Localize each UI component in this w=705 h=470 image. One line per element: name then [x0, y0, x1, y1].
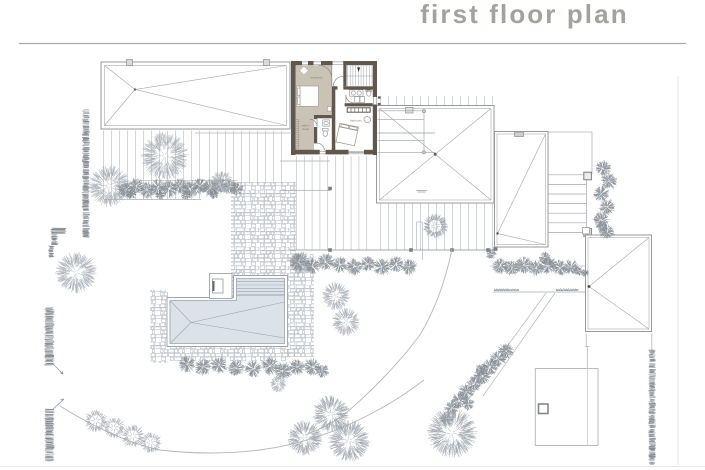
- svg-text:bedroom: bedroom: [311, 76, 323, 80]
- svg-text:first floor plan: first floor plan: [420, 0, 628, 29]
- svg-text:bedroom: bedroom: [350, 118, 362, 122]
- svg-text:closet: closet: [302, 127, 309, 131]
